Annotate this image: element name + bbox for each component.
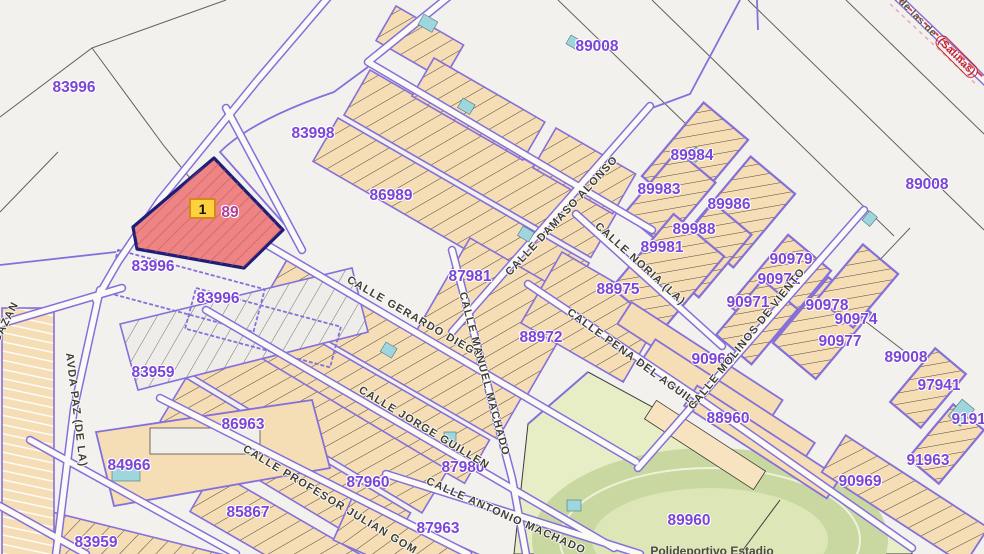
map-canvas[interactable]: 83996 83998 89008 89008 86989 87981 8897… [0,0,984,554]
parcel-label: 86989 [369,187,412,205]
parcel-label: 90969 [838,473,881,491]
parcel-label: 89981 [640,239,683,257]
parcel-label: 90979 [769,251,812,269]
parcel-label: 89960 [667,512,710,530]
parcel-label: 89008 [884,349,927,367]
parcel-label: 88960 [706,410,749,428]
parcel-label: 83996 [131,258,174,276]
parcel-label: 83959 [74,534,117,552]
parcel-label: 89986 [707,196,750,214]
parcel-label: 90977 [818,333,861,351]
parcel-label: 97941 [917,377,960,395]
parcel-label: 87963 [416,520,459,538]
parcel-label: 85867 [226,504,269,522]
selected-parcel-number: 89 [221,204,238,222]
parcel-label: 86963 [221,416,264,434]
parcel-label: 84966 [107,457,150,475]
parcel-label: 83996 [52,79,95,97]
facility-label: Polideportivo Estadio [650,544,773,554]
parcel-label: 88975 [596,281,639,299]
parcel-label: 89008 [575,38,618,56]
parcel-label: 87981 [448,268,491,286]
parcel-label: 83996 [196,290,239,308]
parcel-label: 91963 [906,452,949,470]
parcel-label: 89988 [672,221,715,239]
parcel-label: 90974 [834,311,877,329]
parcel-label: 91914 [951,411,984,429]
parcel-label: 89984 [670,147,713,165]
selected-parcel-marker: 1 [189,198,216,219]
parcel-label: 89983 [637,181,680,199]
parcel-label: 88972 [519,329,562,347]
parcel-label: 83998 [291,125,334,143]
parcel-label: 83959 [131,364,174,382]
parcel-label: 89008 [905,176,948,194]
parcel-label: 87960 [346,474,389,492]
